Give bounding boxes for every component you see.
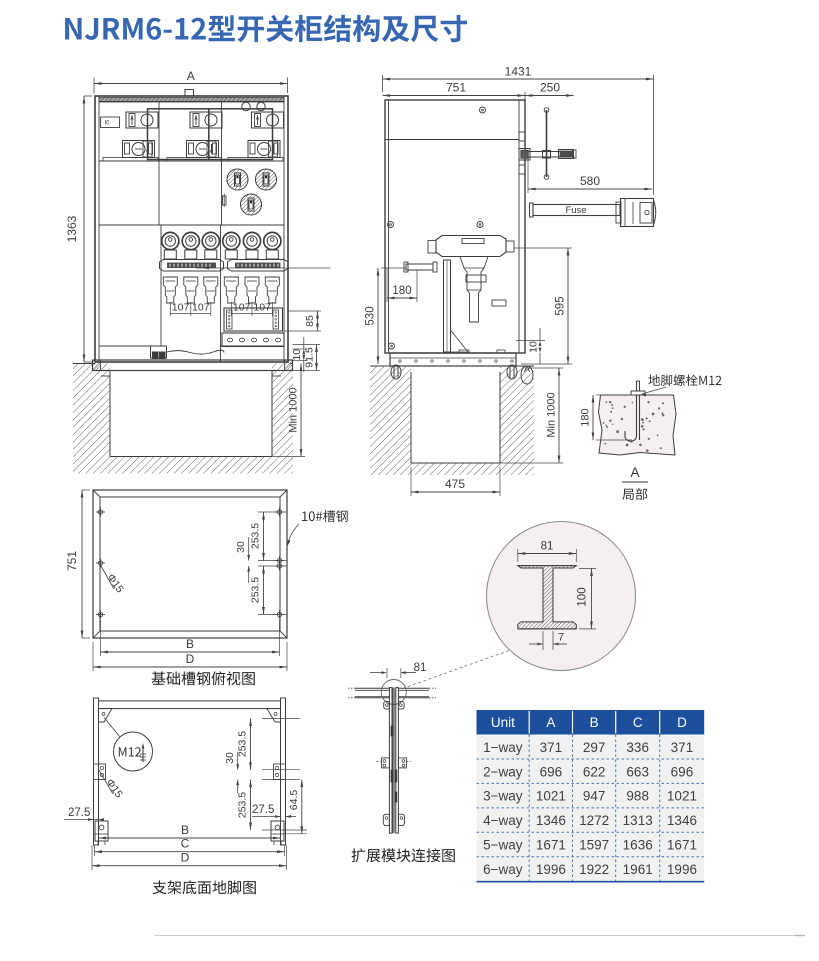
svg-text:1363: 1363 <box>65 215 79 242</box>
svg-text:10: 10 <box>291 349 303 361</box>
svg-text:1597: 1597 <box>579 838 609 853</box>
svg-text:595: 595 <box>555 296 567 315</box>
svg-text:530: 530 <box>365 306 377 325</box>
svg-text:1346: 1346 <box>667 813 697 828</box>
svg-text:5−way: 5−way <box>483 838 523 853</box>
svg-text:D: D <box>181 851 190 865</box>
svg-text:107: 107 <box>172 302 190 314</box>
svg-text:27.5: 27.5 <box>252 804 274 816</box>
svg-text:1272: 1272 <box>579 813 609 828</box>
svg-text:250: 250 <box>540 81 560 95</box>
svg-text:B: B <box>186 637 194 651</box>
svg-text:1−way: 1−way <box>483 740 523 755</box>
svg-text:85: 85 <box>304 315 316 327</box>
svg-text:Fuse: Fuse <box>565 205 586 216</box>
svg-text:1313: 1313 <box>623 813 653 828</box>
svg-text:253.5: 253.5 <box>250 577 262 603</box>
svg-text:580: 580 <box>580 174 600 188</box>
svg-text:Min 1000: Min 1000 <box>288 387 300 432</box>
svg-text:1636: 1636 <box>623 838 653 853</box>
svg-text:10: 10 <box>528 341 540 353</box>
svg-text:1671: 1671 <box>536 838 566 853</box>
svg-text:371: 371 <box>671 740 694 755</box>
svg-text:100: 100 <box>577 587 589 606</box>
svg-text:7: 7 <box>558 632 564 644</box>
svg-text:1431: 1431 <box>505 65 532 79</box>
svg-text:180: 180 <box>580 408 592 426</box>
svg-text:622: 622 <box>583 764 606 779</box>
svg-text:B: B <box>590 715 599 730</box>
svg-text:Φ15: Φ15 <box>104 777 125 800</box>
svg-text:81: 81 <box>541 541 554 553</box>
svg-text:Min 1000: Min 1000 <box>546 392 558 437</box>
svg-text:A: A <box>630 465 639 480</box>
svg-text:1996: 1996 <box>667 862 697 877</box>
svg-text:C: C <box>181 837 190 851</box>
svg-text:253.5: 253.5 <box>237 792 249 818</box>
svg-text:30: 30 <box>235 541 247 553</box>
svg-text:696: 696 <box>671 764 694 779</box>
svg-text:30: 30 <box>224 752 236 764</box>
svg-text:1021: 1021 <box>667 789 697 804</box>
svg-text:D: D <box>677 715 687 730</box>
svg-text:A: A <box>187 69 195 83</box>
svg-text:475: 475 <box>445 477 465 491</box>
svg-text:91.5: 91.5 <box>304 347 316 368</box>
svg-text:4−way: 4−way <box>483 813 523 828</box>
svg-text:107: 107 <box>192 302 210 314</box>
svg-text:297: 297 <box>583 740 606 755</box>
svg-text:B: B <box>181 823 189 837</box>
svg-text:253.5: 253.5 <box>250 523 262 549</box>
svg-text:696: 696 <box>540 764 563 779</box>
svg-text:2−way: 2−way <box>483 764 523 779</box>
svg-text:1961: 1961 <box>623 862 653 877</box>
svg-text:D: D <box>186 652 195 666</box>
svg-text:1346: 1346 <box>536 813 566 828</box>
svg-text:1671: 1671 <box>667 838 697 853</box>
svg-text:Φ15: Φ15 <box>105 572 126 595</box>
svg-text:I0: I0 <box>104 121 110 127</box>
svg-text:751: 751 <box>446 81 466 95</box>
svg-text:663: 663 <box>626 764 649 779</box>
svg-text:253.5: 253.5 <box>237 731 249 757</box>
svg-text:A: A <box>546 715 555 730</box>
svg-text:1922: 1922 <box>579 862 609 877</box>
svg-text:180: 180 <box>392 285 411 297</box>
svg-text:751: 751 <box>65 551 79 571</box>
svg-text:3−way: 3−way <box>483 789 523 804</box>
svg-text:Unit: Unit <box>491 715 515 730</box>
svg-text:371: 371 <box>540 740 563 755</box>
svg-text:947: 947 <box>583 789 606 804</box>
svg-text:C: C <box>633 715 643 730</box>
svg-text:1996: 1996 <box>536 862 566 877</box>
svg-text:64.5: 64.5 <box>288 790 300 811</box>
svg-text:1021: 1021 <box>536 789 566 804</box>
svg-text:6−way: 6−way <box>483 862 523 877</box>
svg-text:336: 336 <box>626 740 649 755</box>
svg-text:27.5: 27.5 <box>68 807 90 819</box>
svg-text:988: 988 <box>626 789 649 804</box>
